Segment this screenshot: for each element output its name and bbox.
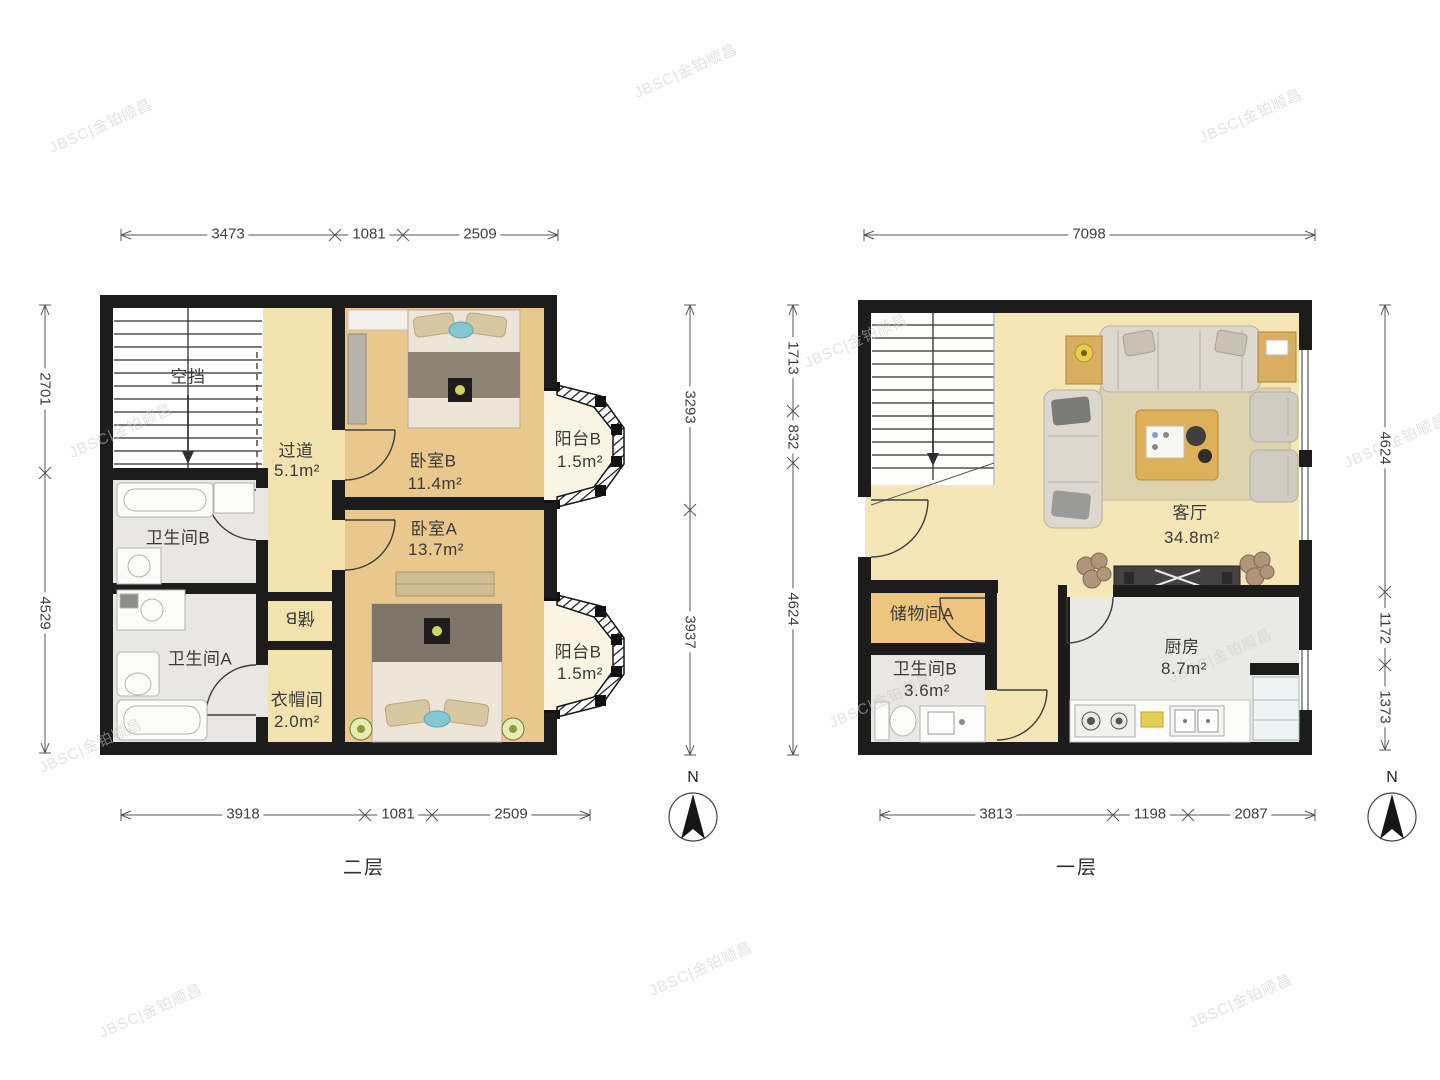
- room-label-bathroom-b-f2: 卫生间B: [146, 524, 210, 549]
- dim-f2-right-1: 3293: [682, 386, 699, 427]
- floorplan-drawing: [0, 0, 1440, 1080]
- dim-f1-bottom-2: 1198: [1130, 806, 1170, 823]
- room-area-cloakroom: 2.0m²: [274, 712, 320, 732]
- dim-f2-top-1: 3473: [207, 226, 248, 243]
- room-label-bathroom-a: 卫生间A: [168, 645, 232, 670]
- room-area-kitchen: 8.7m²: [1161, 659, 1207, 679]
- room-label-bedroom-a: 卧室A: [411, 515, 458, 540]
- room-label-void: 空挡: [171, 363, 206, 388]
- room-area-balcony-top: 1.5m²: [557, 452, 603, 472]
- room-label-living: 客厅: [1173, 499, 1208, 524]
- compass-left: [669, 793, 717, 841]
- dim-f2-left-2: 4529: [37, 592, 54, 633]
- floor2-plan: [39, 229, 717, 841]
- compass-right: [1368, 793, 1416, 841]
- dim-f2-top-3: 2509: [459, 226, 500, 243]
- dim-f2-top-2: 1081: [348, 226, 389, 243]
- floor1-windows: [1299, 350, 1312, 710]
- dim-f2-bottom-3: 2509: [490, 806, 531, 823]
- room-area-living: 34.8m²: [1164, 528, 1220, 548]
- room-label-bathroom-b-f1: 卫生间B: [893, 655, 957, 680]
- dim-f1-top-1: 7098: [1068, 226, 1109, 243]
- dim-f1-right-2: 1172: [1377, 608, 1394, 648]
- dim-f2-bottom-2: 1081: [377, 806, 418, 823]
- bath-b-door-gap: [256, 488, 268, 540]
- dim-f2-left-1: 2701: [37, 368, 54, 409]
- room-area-bathroom-b-f1: 3.6m²: [904, 681, 950, 701]
- dim-f1-right-3: 1373: [1377, 686, 1394, 727]
- dim-f1-left-2: 832: [785, 420, 802, 453]
- floor2-title: 二层: [343, 853, 385, 880]
- bath-a-door-gap: [256, 665, 268, 717]
- dim-f1-right-1: 4624: [1377, 427, 1394, 468]
- room-label-balcony-bottom: 阳台B: [555, 638, 602, 663]
- room-area-corridor: 5.1m²: [274, 461, 320, 481]
- floor1-title: 一层: [1056, 853, 1098, 880]
- room-area-balcony-bottom: 1.5m²: [557, 664, 603, 684]
- dim-f2-bottom-1: 3918: [222, 806, 263, 823]
- room-label-closet-b: 储B: [285, 608, 314, 633]
- room-area-bedroom-a: 13.7m²: [408, 540, 464, 560]
- compass-north-label-right: N: [1386, 769, 1398, 787]
- dim-f2-right-2: 3937: [682, 611, 699, 652]
- floorplan-canvas: JBSC|金铂顺昌 JBSC|金铂顺昌 JBSC|金铂顺昌 JBSC|金铂顺昌 …: [0, 0, 1440, 1080]
- room-label-storage-a: 储物间A: [890, 600, 954, 625]
- dim-f1-bottom-3: 2087: [1230, 806, 1271, 823]
- room-label-cloakroom: 衣帽间: [271, 686, 324, 711]
- dim-f1-left-3: 4624: [785, 588, 802, 629]
- room-label-kitchen: 厨房: [1165, 633, 1200, 658]
- room-area-bedroom-b: 11.4m²: [408, 474, 463, 494]
- room-label-balcony-top: 阳台B: [555, 425, 602, 450]
- compass-north-label-left: N: [687, 769, 699, 787]
- dim-f1-left-1: 1713: [785, 337, 802, 378]
- room-label-corridor: 过道: [279, 437, 314, 462]
- dim-f1-bottom-1: 3813: [975, 806, 1016, 823]
- room-label-bedroom-b: 卧室B: [410, 447, 457, 472]
